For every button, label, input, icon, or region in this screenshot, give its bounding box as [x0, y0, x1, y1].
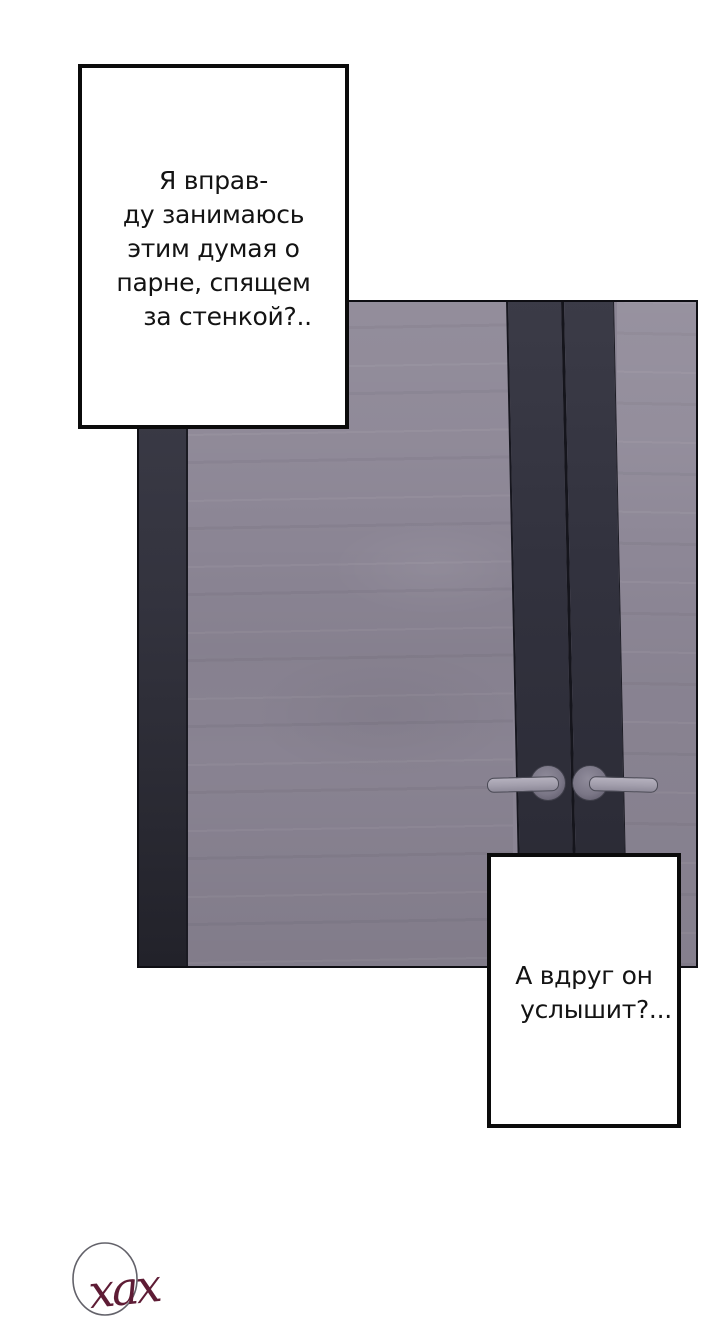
thought-bubble-top-text: Я вправ- ду занимаюсь этим думая о парне…: [82, 164, 345, 334]
comic-page-canvas: Я вправ- ду занимаюсь этим думая о парне…: [0, 0, 720, 1332]
thought-bubble-top: Я вправ- ду занимаюсь этим думая о парне…: [78, 64, 349, 429]
bubble-line: этим думая о: [82, 232, 345, 266]
bubble-line: услышит?...: [503, 993, 689, 1027]
signature-text: хах: [86, 1258, 165, 1319]
artist-signature: хах: [40, 1235, 180, 1330]
bubble-line: за стенкой?..: [96, 300, 359, 334]
bubble-line: А вдруг он: [491, 959, 677, 993]
bubble-line: парне, спящем: [82, 266, 345, 300]
bubble-line: Я вправ-: [82, 164, 345, 198]
door-handle-right-icon: [589, 776, 658, 793]
bubble-line: ду занимаюсь: [82, 198, 345, 232]
thought-bubble-bottom-text: А вдруг он услышит?...: [491, 959, 677, 1027]
signature-graphic: хах: [40, 1235, 180, 1330]
thought-bubble-bottom: А вдруг он услышит?...: [487, 853, 681, 1128]
door-handle-left-icon: [487, 776, 559, 793]
